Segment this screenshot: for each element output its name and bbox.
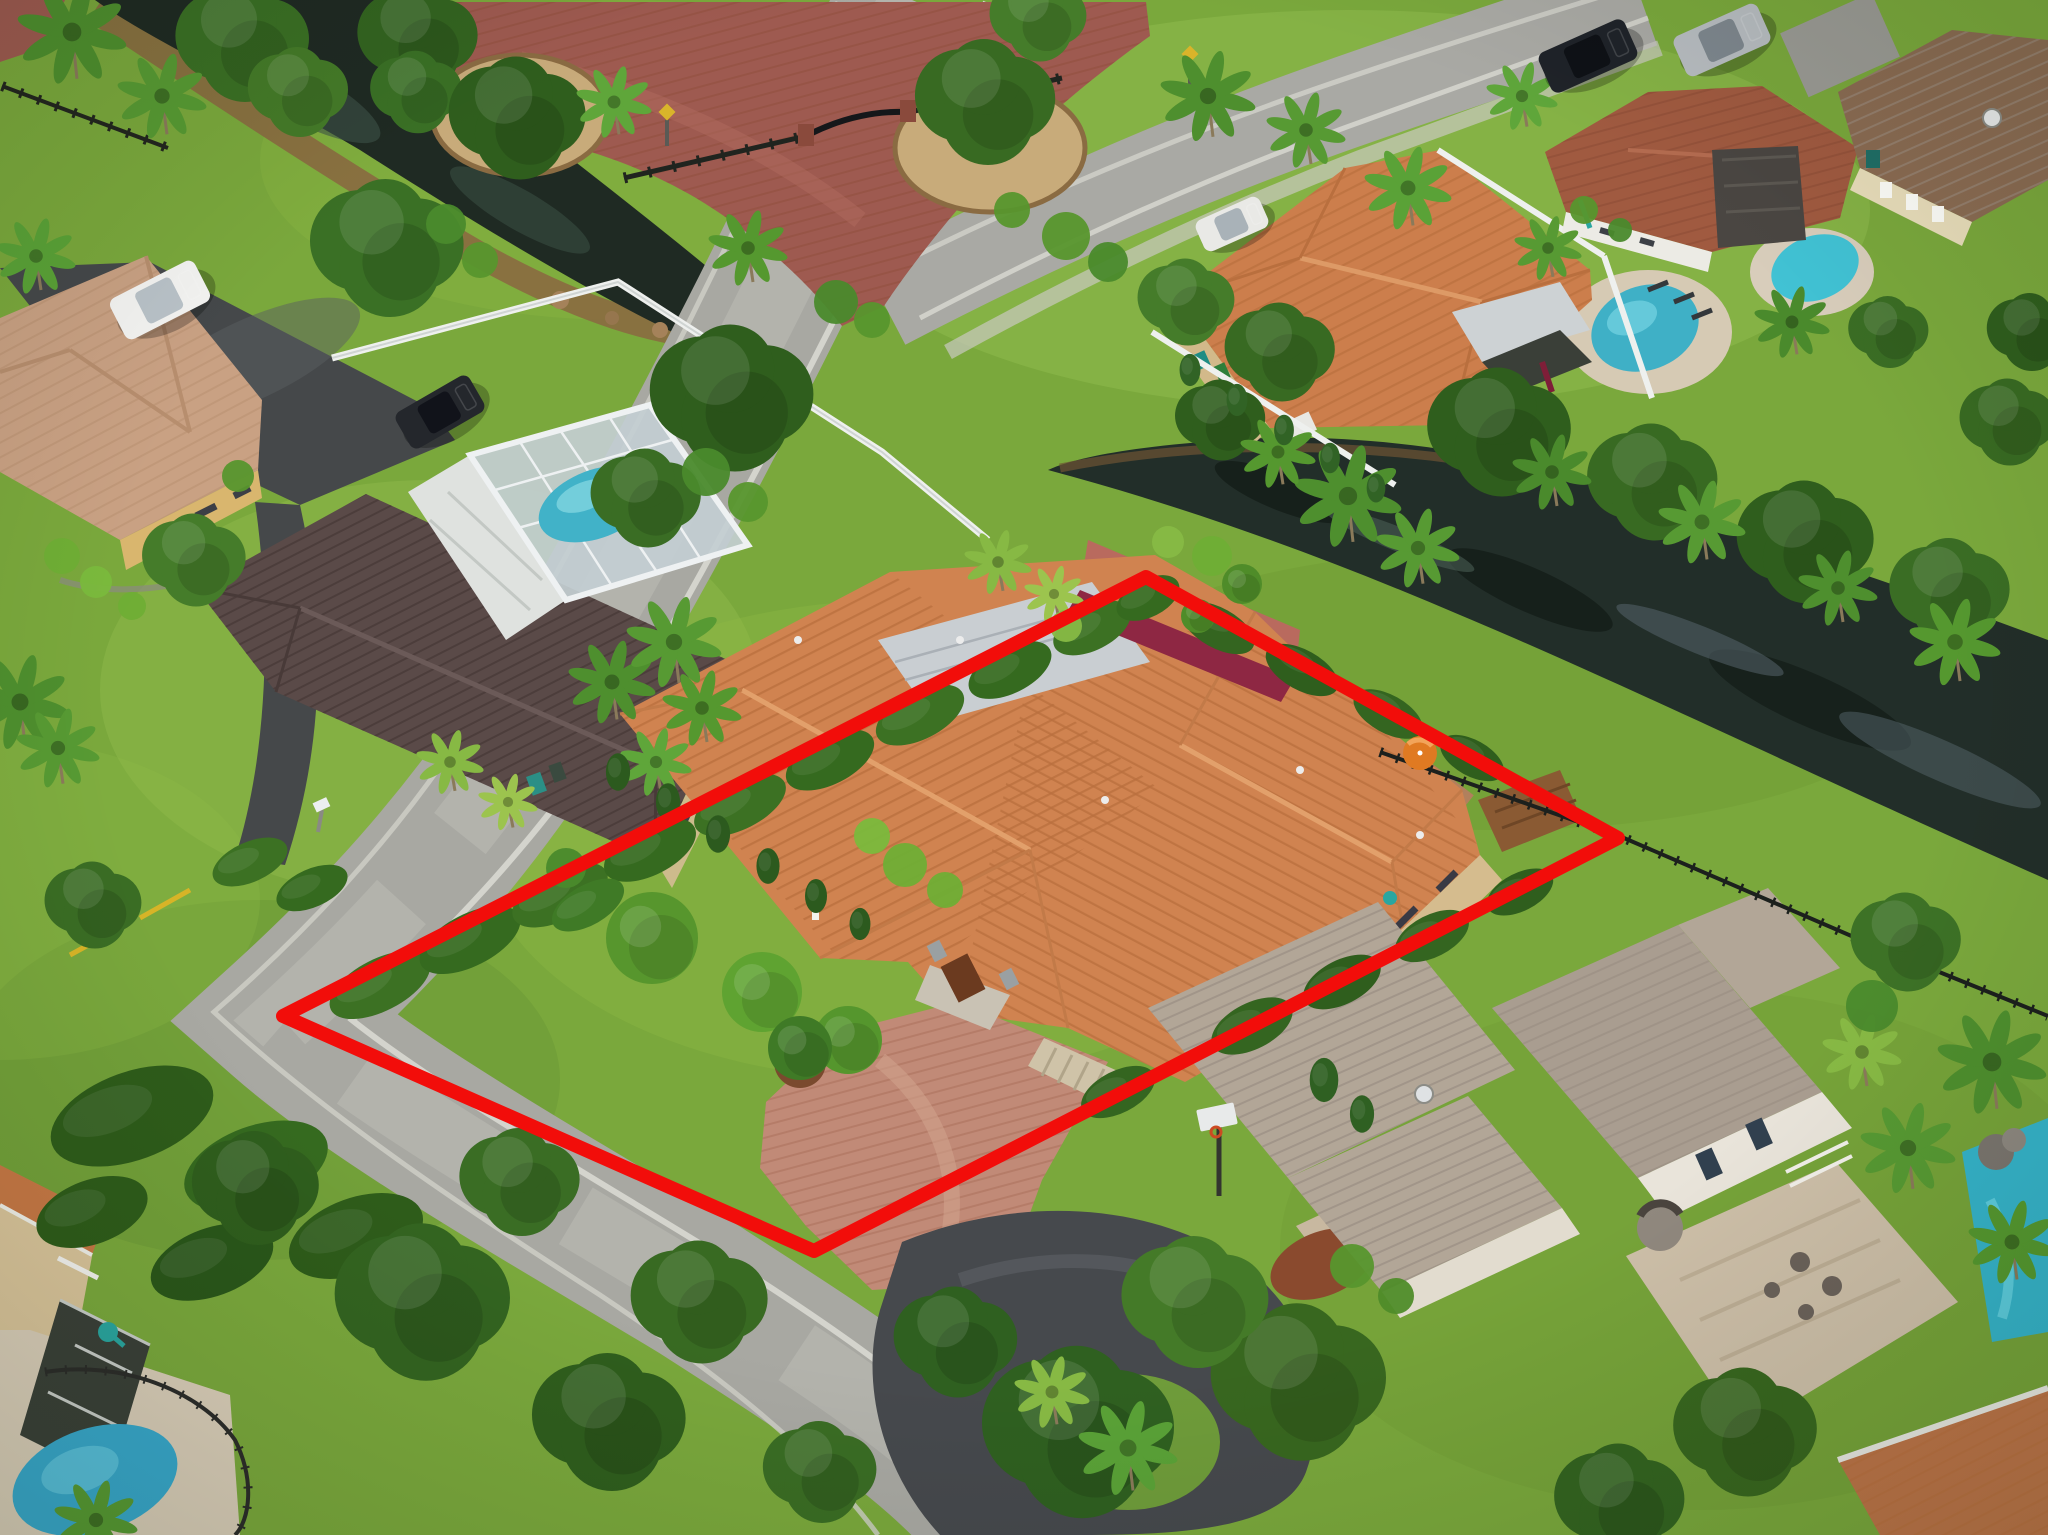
aerial-photo — [0, 0, 2048, 1535]
aerial-photo-container — [0, 0, 2048, 1535]
photo-vignette — [0, 0, 2048, 1535]
